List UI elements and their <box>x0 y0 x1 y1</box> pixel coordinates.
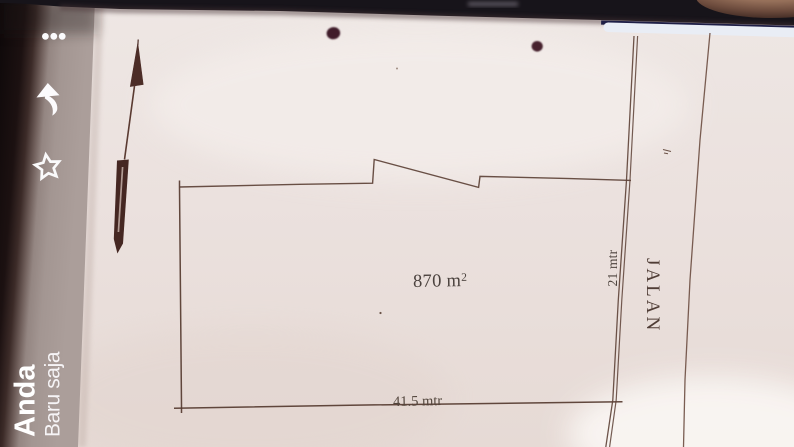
svg-text:41.5 mtr: 41.5 mtr <box>393 393 443 410</box>
svg-text:870 m2: 870 m2 <box>413 271 468 292</box>
svg-text:Anda: Anda <box>10 364 42 437</box>
svg-text:JALAN: JALAN <box>642 258 663 333</box>
svg-text:Baru saja: Baru saja <box>42 351 65 437</box>
svg-text:21 mtr: 21 mtr <box>605 249 620 286</box>
